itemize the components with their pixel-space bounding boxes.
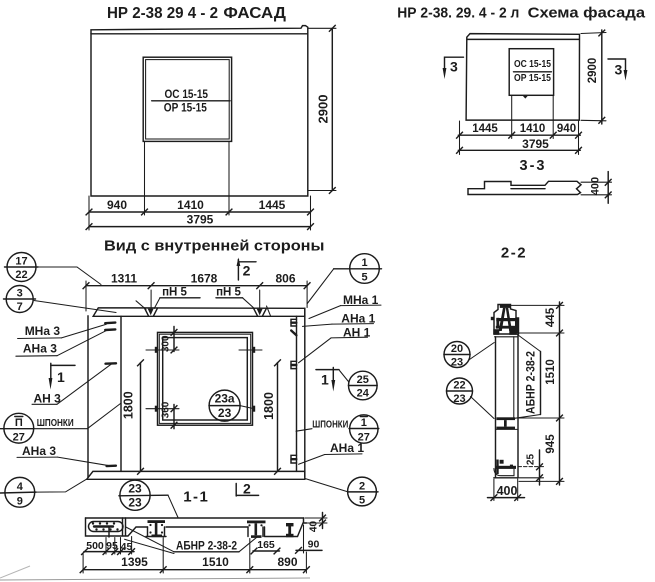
svg-text:1: 1 <box>361 257 367 269</box>
svg-text:400: 400 <box>497 484 518 498</box>
svg-text:23: 23 <box>451 356 463 368</box>
svg-text:1678: 1678 <box>191 271 218 285</box>
svg-text:1-1: 1-1 <box>183 489 209 506</box>
svg-text:3: 3 <box>450 59 458 75</box>
svg-text:1510: 1510 <box>545 359 557 385</box>
svg-text:5: 5 <box>359 495 365 507</box>
svg-text:2900: 2900 <box>587 58 599 84</box>
svg-text:25: 25 <box>357 374 369 386</box>
svg-text:пН 5: пН 5 <box>216 286 241 298</box>
svg-text:90: 90 <box>308 539 320 551</box>
svg-text:ОС 15-15: ОС 15-15 <box>165 89 209 101</box>
svg-text:ФАСАД: ФАСАД <box>223 5 286 22</box>
svg-text:9: 9 <box>17 495 23 507</box>
svg-text:890: 890 <box>277 555 297 569</box>
svg-text:Вид с внутренней стороны: Вид с внутренней стороны <box>104 238 325 255</box>
svg-text:23: 23 <box>128 481 142 495</box>
svg-text:АН 3: АН 3 <box>34 391 62 405</box>
svg-text:АНа 3: АНа 3 <box>23 342 57 356</box>
svg-text:3: 3 <box>615 62 623 78</box>
svg-text:23: 23 <box>128 496 142 510</box>
svg-text:НР 2-38 29 4 - 2: НР 2-38 29 4 - 2 <box>107 5 218 22</box>
svg-text:940: 940 <box>557 123 576 135</box>
svg-text:1800: 1800 <box>122 391 136 419</box>
svg-text:1311: 1311 <box>111 271 137 285</box>
svg-text:2: 2 <box>359 480 365 492</box>
svg-text:1: 1 <box>361 417 367 429</box>
svg-text:2: 2 <box>243 262 251 278</box>
svg-text:165: 165 <box>257 539 275 551</box>
svg-text:5: 5 <box>361 271 367 283</box>
svg-text:П: П <box>15 417 23 429</box>
svg-text:1395: 1395 <box>121 555 148 569</box>
svg-text:ОС 15-15: ОС 15-15 <box>514 59 551 70</box>
svg-text:ОР 15-15: ОР 15-15 <box>514 73 551 84</box>
svg-text:17: 17 <box>15 255 27 267</box>
svg-text:23а: 23а <box>215 392 235 406</box>
svg-text:23: 23 <box>453 393 465 405</box>
svg-text:АНа 3: АНа 3 <box>22 444 56 458</box>
svg-text:20: 20 <box>451 343 463 355</box>
svg-text:7: 7 <box>17 301 23 313</box>
svg-text:27: 27 <box>13 432 25 444</box>
svg-text:23: 23 <box>218 406 232 420</box>
svg-text:2: 2 <box>243 481 251 497</box>
svg-text:40: 40 <box>309 521 320 533</box>
svg-text:НР 2-38. 29. 4 - 2 л: НР 2-38. 29. 4 - 2 л <box>397 5 519 22</box>
svg-text:1800: 1800 <box>262 392 276 420</box>
svg-text:1410: 1410 <box>520 123 546 135</box>
svg-text:3: 3 <box>17 287 23 299</box>
svg-text:ШПОНКИ: ШПОНКИ <box>37 418 74 429</box>
svg-text:360: 360 <box>161 401 172 418</box>
svg-text:МНа 3: МНа 3 <box>25 324 61 338</box>
svg-text:АБНР 2-38-2: АБНР 2-38-2 <box>176 540 237 552</box>
svg-text:1445: 1445 <box>472 123 498 135</box>
svg-text:1510: 1510 <box>202 555 229 569</box>
svg-text:3-3: 3-3 <box>520 158 547 174</box>
svg-text:2900: 2900 <box>316 95 331 124</box>
svg-text:1445: 1445 <box>259 198 286 212</box>
svg-text:АБНР 2-38-2: АБНР 2-38-2 <box>526 351 538 414</box>
svg-text:2-2: 2-2 <box>501 245 527 262</box>
svg-text:940: 940 <box>107 198 127 212</box>
svg-text:500: 500 <box>86 540 104 552</box>
svg-text:1: 1 <box>321 372 329 388</box>
svg-text:ШПОНКИ: ШПОНКИ <box>312 419 348 430</box>
svg-text:1410: 1410 <box>177 198 204 212</box>
svg-text:24: 24 <box>357 388 370 400</box>
svg-text:300: 300 <box>161 335 172 352</box>
svg-text:25: 25 <box>526 454 537 466</box>
svg-text:945: 945 <box>545 434 557 454</box>
svg-text:22: 22 <box>15 269 27 281</box>
svg-text:Схема фасада: Схема фасада <box>528 5 646 22</box>
svg-text:22: 22 <box>453 380 465 392</box>
svg-text:1: 1 <box>57 369 65 385</box>
svg-text:400: 400 <box>589 177 601 195</box>
svg-text:806: 806 <box>275 271 295 285</box>
svg-text:ОР 15-15: ОР 15-15 <box>164 102 208 114</box>
svg-text:3795: 3795 <box>522 137 549 151</box>
svg-text:3795: 3795 <box>187 213 214 227</box>
svg-text:4: 4 <box>17 481 24 493</box>
svg-text:АНа 1: АНа 1 <box>330 441 364 455</box>
svg-text:445: 445 <box>545 307 557 327</box>
svg-text:пН 5: пН 5 <box>162 286 187 298</box>
